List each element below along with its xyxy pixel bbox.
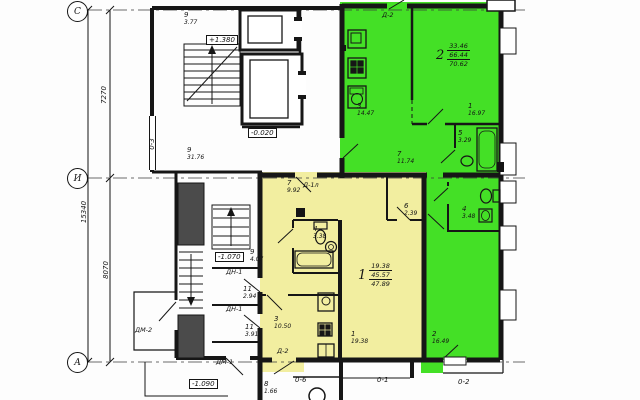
door-label-apt1-balcony: Д-2 <box>277 348 289 355</box>
apartment-1-summary: 1 19.38 45.57 47.89 <box>358 262 392 288</box>
room-label: 314.47 <box>357 103 374 117</box>
living-area: 19.38 <box>369 262 392 271</box>
room-area: 1.66 <box>264 389 277 396</box>
dim-15340: 15340 <box>80 201 88 223</box>
door-label-side-entrance: ДМ-2 <box>135 327 152 334</box>
room-label: 112.94 <box>243 286 256 300</box>
room-area: 3.48 <box>462 214 475 221</box>
room-area: 14.47 <box>357 111 374 118</box>
apartment-2-summary: 2 33.46 66.44 70.62 <box>436 42 470 68</box>
axis-col-0-2: 0-2 <box>458 379 469 386</box>
door-label-main-entrance: ДМ-1 <box>216 359 233 366</box>
room-label: 94.07 <box>250 249 263 263</box>
room-label: 116.97 <box>468 103 485 117</box>
usable-area: 66.44 <box>447 51 470 60</box>
apartment-areas: 33.46 66.44 70.62 <box>447 42 470 68</box>
room-label: 53.29 <box>458 130 471 144</box>
axis-row-c-label: С <box>74 7 81 17</box>
door-label-balcony-top: Д-2 <box>382 12 394 19</box>
room-label: 711.74 <box>397 151 414 165</box>
apartment-areas: 19.38 45.57 47.89 <box>369 262 392 288</box>
level-entry: -1.070 <box>215 252 244 262</box>
room-area: 31.76 <box>187 155 204 162</box>
room-area: 3.91 <box>245 332 258 339</box>
level-ground: -0.020 <box>248 128 277 138</box>
room-area: 11.74 <box>397 159 414 166</box>
room-label: 216.49 <box>432 331 449 345</box>
room-area: 10.50 <box>274 324 291 331</box>
room-area: 3.38 <box>313 234 326 241</box>
usable-area: 45.57 <box>369 271 392 280</box>
axis-row-i: И <box>67 168 88 189</box>
total-area: 47.89 <box>369 280 392 288</box>
room-area: 19.38 <box>351 339 368 346</box>
room-label: 310.50 <box>274 316 291 330</box>
axis-row-i-label: И <box>74 174 82 184</box>
door-label-inner-1: ДН-1 <box>226 269 242 276</box>
apartment-2-region <box>340 2 502 178</box>
dim-8070: 8070 <box>102 261 110 279</box>
axis-row-a: А <box>67 352 88 373</box>
axis-col-left-label: 0-3 <box>148 138 156 149</box>
room-area: 3.77 <box>184 20 197 27</box>
dim-7270: 7270 <box>100 86 108 104</box>
room-label: 81.66 <box>264 381 277 395</box>
level-stair: +1.380 <box>206 35 238 45</box>
door-label-apt1-entry: Д-1л <box>303 182 319 189</box>
apartment-1-door-region <box>262 362 304 372</box>
room-label: 43.38 <box>313 226 326 240</box>
room-label: 79.92 <box>287 180 300 194</box>
floor-plan-drawing <box>0 0 640 400</box>
room-area: 2.39 <box>404 211 417 218</box>
living-area: 33.46 <box>447 42 470 51</box>
room-area: 2.94 <box>243 294 256 301</box>
room-label: 62.39 <box>404 203 417 217</box>
floor-plan: С И А 7270 15340 8070 0-3 0-6 0-1 0-2 +1… <box>0 0 640 400</box>
axis-col-0-1: 0-1 <box>377 377 388 384</box>
room-label: 93.77 <box>184 12 197 26</box>
room-area: 16.97 <box>468 111 485 118</box>
room-label: 931.76 <box>187 147 204 161</box>
level-porch: -1.090 <box>189 379 218 389</box>
axis-col-0-6: 0-6 <box>295 377 306 384</box>
axis-row-a-label: А <box>74 358 81 368</box>
room-area: 9.92 <box>287 188 300 195</box>
room-area: 3.29 <box>458 138 471 145</box>
room-label: 119.38 <box>351 331 368 345</box>
apartment-1-region <box>260 172 426 362</box>
apartment-number: 2 <box>436 48 444 63</box>
dimension-lines <box>84 6 114 366</box>
door-label-inner-2: ДН-1 <box>226 306 242 313</box>
stairs-icon <box>184 44 240 106</box>
apartment-number: 1 <box>358 268 366 283</box>
total-area: 70.62 <box>447 60 470 68</box>
axis-row-c: С <box>67 1 88 22</box>
room-area: 16.49 <box>432 339 449 346</box>
room-label: 113.91 <box>245 324 258 338</box>
elevator-icon <box>240 10 306 124</box>
room-area: 4.07 <box>250 257 263 264</box>
room-label: 43.48 <box>462 206 475 220</box>
